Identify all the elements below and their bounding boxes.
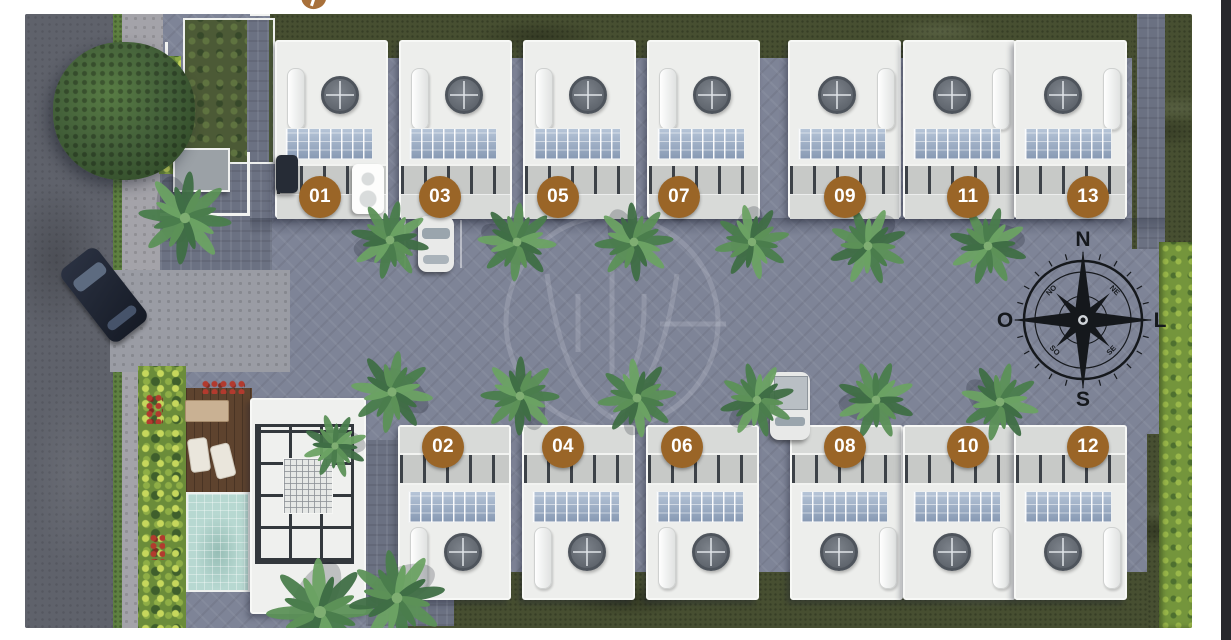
roof-vent [569,76,607,114]
car-windshield [422,228,450,239]
water-tank [1103,68,1121,130]
cropped-logo-fragment [301,0,328,11]
solar-panels [913,128,1001,160]
solar-panels [285,128,373,160]
solar-panels [800,491,888,523]
water-tank [534,527,552,589]
dark-edge-bar [1221,0,1231,640]
unit-badge-05: 05 [537,176,579,218]
roof-vent [321,76,359,114]
water-tank [287,68,305,130]
solar-panels [408,491,496,523]
compass-label: S [1076,388,1090,410]
pickup-truck [770,372,810,440]
car-windshield [71,260,108,293]
solar-panels [657,128,745,160]
compass-label: N [1075,230,1090,251]
unit-badge-01: 01 [299,176,341,218]
roof-vent [818,76,856,114]
swimming-pool [186,492,250,592]
solar-panels [533,128,621,160]
unit-badge-10: 10 [947,426,989,468]
water-tank [877,68,895,130]
court-wall-right [247,152,250,216]
garden-path [247,20,269,162]
solar-panels [532,491,620,523]
roof-vent [933,533,971,571]
roof-vent [568,533,606,571]
compass-label: L [1154,309,1167,332]
solar-panels [1024,128,1112,160]
compass-rose: NSLONENOSESO [993,230,1173,410]
water-tank [1103,527,1121,589]
gate-canopy [173,148,230,192]
watermark-logo [492,202,732,442]
car-rear-window [105,303,138,332]
unit-badge-12: 12 [1067,426,1109,468]
water-tank [992,68,1010,130]
water-tank [659,68,677,130]
parking-stall-line [460,220,462,268]
water-tank [411,68,429,130]
flower-accent [145,394,163,424]
roof-vent [1044,76,1082,114]
path-top-right [1137,14,1165,249]
truck-bed [774,376,808,410]
flower-accent [149,534,165,560]
clubhouse-skylight [283,458,333,514]
unit-badge-07: 07 [658,176,700,218]
unit-badge-03: 03 [419,176,461,218]
unit-badge-13: 13 [1067,176,1109,218]
unit-badge-11: 11 [947,176,989,218]
solar-panels [1024,491,1112,523]
deck-bench [185,400,229,422]
roof-vent [933,76,971,114]
roof-vent [692,533,730,571]
flower-bed [201,380,245,394]
water-tank [410,527,428,589]
car-garage [276,155,298,193]
car-white [418,216,454,272]
spa-tub [352,164,384,214]
solar-panels [913,491,1001,523]
roof-vent [1044,533,1082,571]
unit-badge-06: 06 [661,426,703,468]
water-tank [879,527,897,589]
parking-stall-line [404,220,406,268]
roof-vent [444,533,482,571]
car-rear-window [423,255,449,264]
truck-windshield [775,417,805,426]
unit-badge-08: 08 [824,426,866,468]
compass-label: O [997,309,1013,332]
entrance-garden [183,18,275,164]
site-plan-rendering: NSLONENOSESO 01 03 05 07 09 11 13 02 04 … [25,14,1192,628]
solar-panels [798,128,886,160]
compass-label: NO [1044,283,1058,297]
water-tank [535,68,553,130]
water-tank [658,527,676,589]
compass-label: NE [1108,283,1122,297]
roof-vent [820,533,858,571]
screenshot-page: NSLONENOSESO 01 03 05 07 09 11 13 02 04 … [0,0,1231,640]
unit-badge-02: 02 [422,426,464,468]
unit-badge-09: 09 [824,176,866,218]
water-tank [992,527,1010,589]
logo-fragment-highlight [310,0,317,6]
solar-panels [409,128,497,160]
unit-badge-04: 04 [542,426,584,468]
roof-vent [693,76,731,114]
roof-vent [445,76,483,114]
court-wall-bottom [160,213,250,216]
tree [53,42,195,180]
solar-panels [656,491,744,523]
